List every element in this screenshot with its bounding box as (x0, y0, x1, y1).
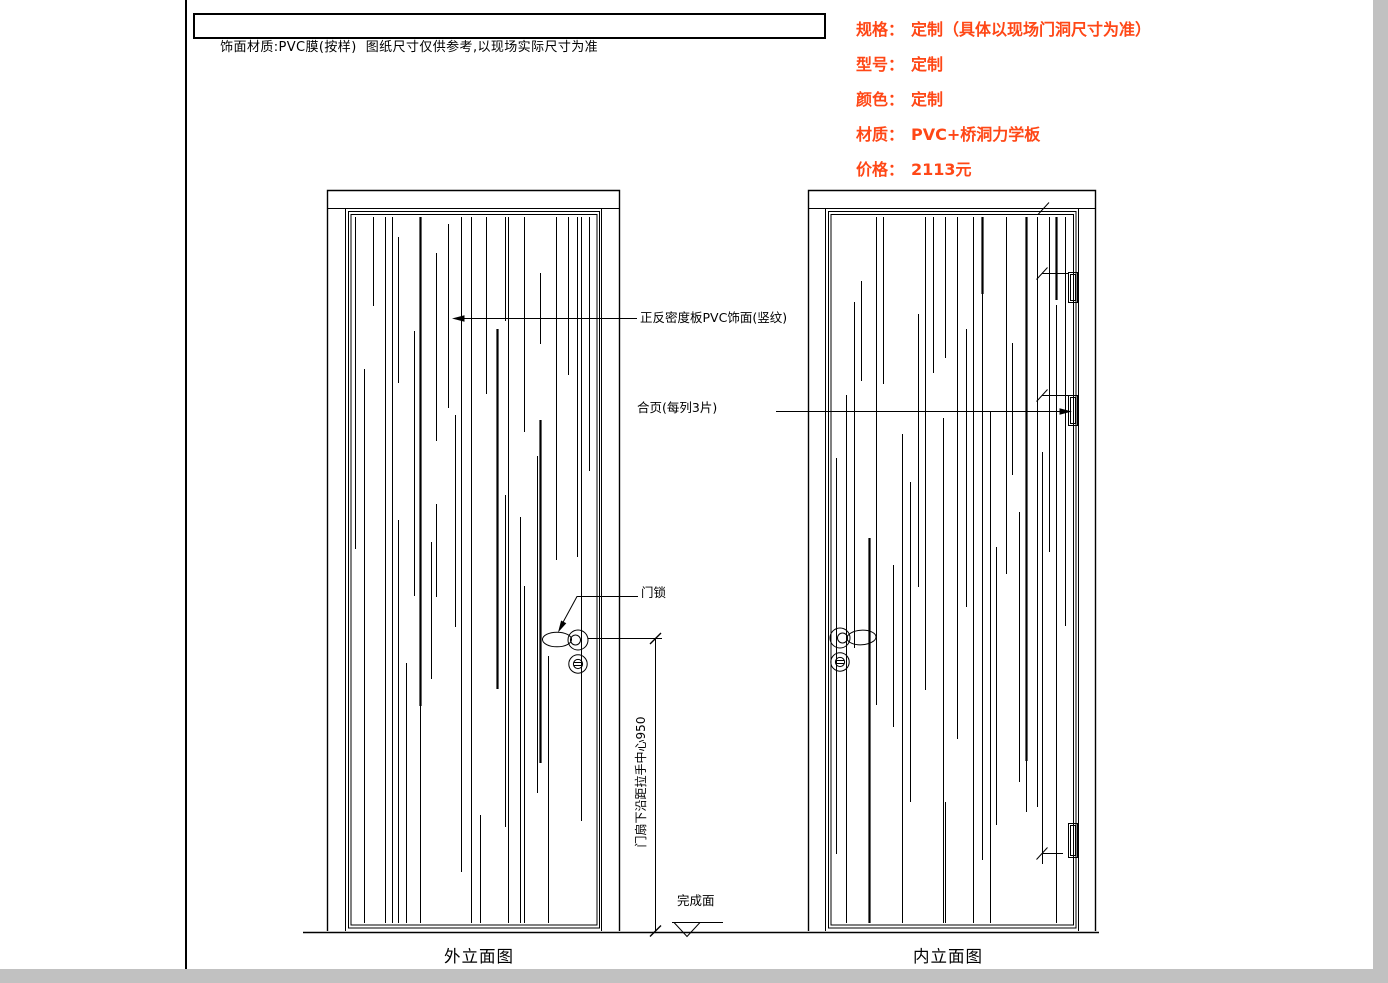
annotation-surface: 正反密度板PVC饰面(竖纹) (640, 310, 787, 325)
left-door (328, 191, 620, 932)
lock-cylinder-icon (569, 655, 587, 673)
annotation-lock: 门锁 (641, 585, 666, 600)
wood-grain-left-heavy (421, 217, 541, 763)
annotation-handle-height: 门扇下沿距拉手中心950 (634, 702, 648, 862)
right-door-frame-outline (809, 191, 1096, 932)
handle-spindle-icon (571, 635, 581, 645)
cad-drawing-page: { "header": { "note": "饰面材质:PVC膜(按样) 图纸尺… (0, 0, 1388, 983)
right-door (809, 191, 1096, 932)
sheet-margin-bottom (0, 969, 1388, 983)
keyhole-detail (836, 661, 844, 664)
left-door-frame-outline (328, 191, 620, 932)
arrow-left-icon (452, 315, 465, 322)
drawing-sheet: 饰面材质:PVC膜(按样) 图纸尺寸仅供参考,以现场实际尺寸为准 规格：定制（具… (0, 0, 1388, 983)
left-door-frame-inner-lines (328, 209, 620, 932)
keyhole-detail (574, 663, 582, 666)
frame-top-tick (1038, 203, 1076, 215)
finish-level-symbol (672, 923, 723, 937)
annotation-finish-level: 完成面 (677, 893, 715, 908)
hinge-top-tick (1037, 268, 1069, 280)
wood-grain-right-heavy (870, 217, 1057, 923)
sheet-margin-right (1373, 0, 1388, 983)
door-elevation-drawing (0, 0, 1388, 983)
left-door-leaf-inner-edge (351, 215, 597, 926)
right-door-frame-inner-lines (809, 209, 1096, 932)
wood-grain-left (356, 217, 590, 923)
right-door-leaf-outline (829, 212, 1077, 929)
hinge-bottom-tick (1037, 848, 1064, 860)
lever-handle-icon (847, 629, 877, 645)
lock-note-leader (558, 597, 638, 633)
hinge-middle-tick (1037, 390, 1069, 402)
annotation-hinges: 合页(每列3片) (637, 400, 717, 415)
lever-handle-icon (543, 632, 572, 647)
level-triangle-icon (674, 923, 700, 937)
arrow-lock-icon (558, 621, 566, 633)
wood-grain-right (837, 217, 1066, 923)
view-label-exterior: 外立面图 (419, 943, 539, 967)
surface-note-leader (452, 315, 637, 322)
view-label-interior: 内立面图 (888, 943, 1008, 967)
